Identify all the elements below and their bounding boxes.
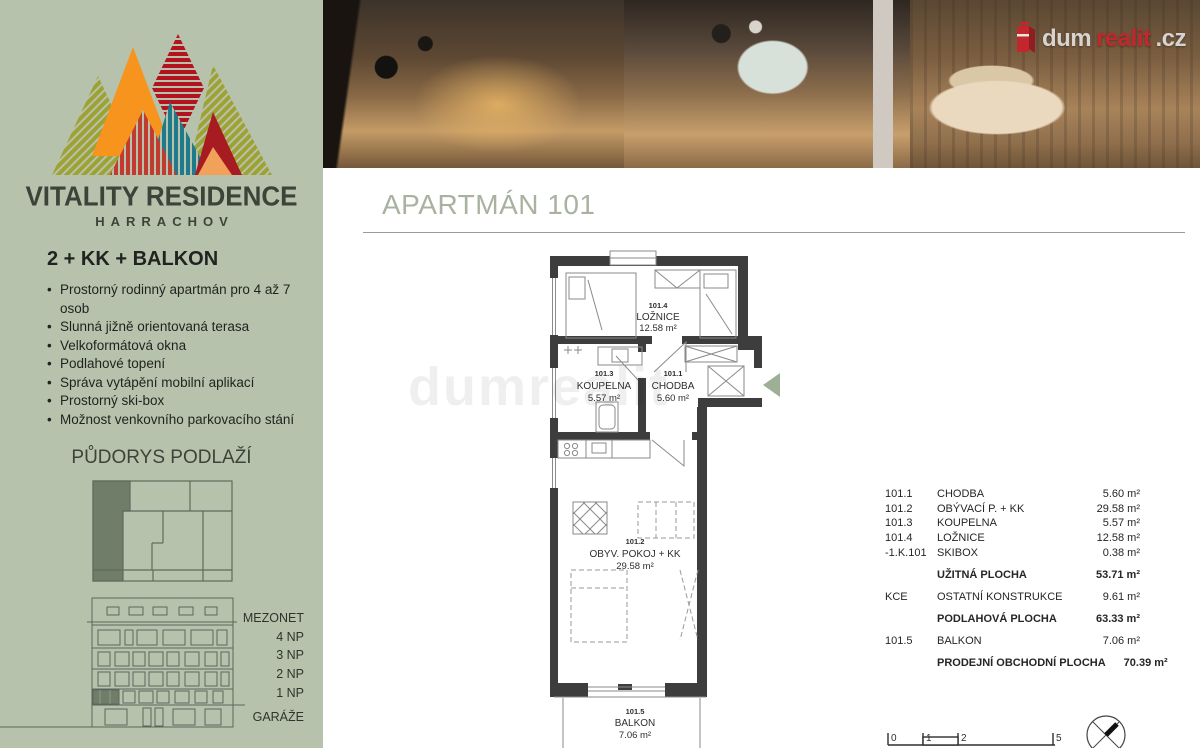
- floor-label-3np: 3 NP: [238, 648, 304, 662]
- compass-icon: [1084, 712, 1130, 748]
- photo-strip: dumrealit.cz: [323, 0, 1200, 168]
- area-table-row: 101.2OBÝVACÍ P. + KK29.58 m²: [885, 502, 1140, 517]
- logo-text-dum: dum: [1042, 25, 1091, 53]
- area-row-id: KCE: [885, 591, 937, 603]
- room-id: 101.4: [649, 301, 669, 310]
- area-row-value: 29.58 m²: [1078, 503, 1140, 515]
- feature-item: Podlahové topení: [47, 355, 312, 374]
- area-row-value: 5.57 m²: [1078, 517, 1140, 529]
- feature-item: Správa vytápění mobilní aplikací: [47, 374, 312, 393]
- area-row-value: 63.33 m²: [1078, 613, 1140, 625]
- sidebar: VITALITY RESIDENCE HARRACHOV 2 + KK + BA…: [0, 0, 323, 748]
- room-name: CHODBA: [652, 381, 695, 392]
- floorplan-section-heading: PŮDORYS PODLAŽÍ: [0, 447, 323, 469]
- dumrealit-logo: dumrealit.cz: [1015, 22, 1186, 56]
- scale-label-2: 2: [961, 733, 967, 744]
- brand-title: VITALITY RESIDENCE: [0, 180, 323, 213]
- feature-item: Velkoformátová okna: [47, 337, 312, 356]
- area-table-row: -1.K.101SKIBOX0.38 m²: [885, 545, 1140, 560]
- room-id: 101.3: [595, 369, 614, 378]
- unit-type-label: 2 + KK + BALKON: [47, 248, 218, 271]
- area-row-value: 7.06 m²: [1078, 635, 1140, 647]
- scale-label-1: 1: [926, 733, 932, 744]
- room-id: 101.2: [626, 537, 645, 546]
- area-row-value: 0.38 m²: [1078, 547, 1140, 559]
- logo-text-realit: realit: [1096, 25, 1150, 53]
- area-row-value: 70.39 m²: [1106, 657, 1168, 669]
- area-row-name: OBÝVACÍ P. + KK: [937, 503, 1078, 515]
- page: VITALITY RESIDENCE HARRACHOV 2 + KK + BA…: [0, 0, 1200, 748]
- area-table-row: PRODEJNÍ OBCHODNÍ PLOCHA70.39 m²: [885, 656, 1140, 671]
- photo-living-room: [624, 0, 910, 168]
- logo-text-cz: .cz: [1155, 25, 1186, 53]
- vitality-mountains-logo: [40, 26, 285, 178]
- floor-label-4np: 4 NP: [238, 630, 304, 644]
- area-row-value: 12.58 m²: [1078, 532, 1140, 544]
- area-row-id: 101.3: [885, 517, 937, 529]
- area-row-value: 5.60 m²: [1078, 488, 1140, 500]
- feature-item: Prostorný ski-box: [47, 392, 312, 411]
- room-name: LOŽNICE: [636, 310, 680, 323]
- room-name: BALKON: [615, 718, 656, 729]
- area-table-row: KCEOSTATNÍ KONSTRUKCE9.61 m²: [885, 590, 1140, 605]
- area-table: 101.1CHODBA5.60 m²101.2OBÝVACÍ P. + KK29…: [885, 487, 1140, 670]
- area-row-id: 101.2: [885, 503, 937, 515]
- area-row-id: 101.1: [885, 488, 937, 500]
- scale-label-5: 5: [1056, 733, 1062, 744]
- room-id: 101.5: [626, 707, 645, 716]
- apartment-floorplan: 101.4 LOŽNICE 12.58 m² 101.3 KOUPELNA 5.…: [540, 250, 790, 748]
- scale-bar: 0 1 2 5: [885, 724, 1065, 748]
- room-area: 7.06 m²: [619, 730, 651, 741]
- room-area: 12.58 m²: [639, 323, 677, 334]
- area-table-row: PODLAHOVÁ PLOCHA63.33 m²: [885, 612, 1140, 627]
- photo-dining-room: [323, 0, 624, 168]
- room-area: 29.58 m²: [616, 561, 654, 572]
- area-row-name: CHODBA: [937, 488, 1078, 500]
- area-row-name: LOŽNICE: [937, 532, 1078, 544]
- area-table-row: 101.3KOUPELNA5.57 m²: [885, 516, 1140, 531]
- entrance-arrow-icon: [763, 373, 780, 397]
- area-table-row: UŽITNÁ PLOCHA53.71 m²: [885, 567, 1140, 582]
- floor-label-garaze: GARÁŽE: [238, 710, 304, 724]
- feature-item: Prostorný rodinný apartmán pro 4 až 7 os…: [47, 281, 312, 318]
- scale-label-0: 0: [891, 733, 897, 744]
- dumrealit-icon: [1015, 22, 1037, 56]
- floor-label-1np: 1 NP: [238, 686, 304, 700]
- brand-subtitle: HARRACHOV: [0, 214, 323, 229]
- area-row-name: UŽITNÁ PLOCHA: [937, 569, 1078, 581]
- area-row-name: OSTATNÍ KONSTRUKCE: [937, 591, 1078, 603]
- room-area: 5.57 m²: [588, 393, 620, 404]
- area-row-id: -1.K.101: [885, 547, 937, 559]
- area-row-value: 53.71 m²: [1078, 569, 1140, 581]
- area-row-name: KOUPELNA: [937, 517, 1078, 529]
- room-name: KOUPELNA: [577, 381, 632, 392]
- floor-label-mezonet: MEZONET: [238, 611, 304, 625]
- area-row-name: BALKON: [937, 635, 1078, 647]
- photo-bedroom: dumrealit.cz: [910, 0, 1200, 168]
- area-row-value: 9.61 m²: [1078, 591, 1140, 603]
- page-title: APARTMÁN 101: [382, 189, 595, 221]
- title-divider: [363, 232, 1185, 233]
- feature-item: Možnost venkovního parkovacího stání: [47, 411, 312, 430]
- room-name: OBYV. POKOJ + KK: [589, 549, 680, 560]
- floor-outline-diagram: [90, 478, 235, 584]
- area-row-name: SKIBOX: [937, 547, 1078, 559]
- area-row-id: 101.5: [885, 635, 937, 647]
- area-table-row: 101.4LOŽNICE12.58 m²: [885, 531, 1140, 546]
- room-id: 101.1: [664, 369, 683, 378]
- area-row-id: 101.4: [885, 532, 937, 544]
- area-table-row: 101.5BALKON7.06 m²: [885, 634, 1140, 649]
- room-area: 5.60 m²: [657, 393, 689, 404]
- building-elevation-diagram: [0, 590, 245, 735]
- area-table-row: 101.1CHODBA5.60 m²: [885, 487, 1140, 502]
- feature-item: Slunná jižně orientovaná terasa: [47, 318, 312, 337]
- floor-label-2np: 2 NP: [238, 667, 304, 681]
- area-row-name: PODLAHOVÁ PLOCHA: [937, 613, 1078, 625]
- feature-list: Prostorný rodinný apartmán pro 4 až 7 os…: [47, 281, 312, 429]
- area-row-name: PRODEJNÍ OBCHODNÍ PLOCHA: [937, 657, 1106, 669]
